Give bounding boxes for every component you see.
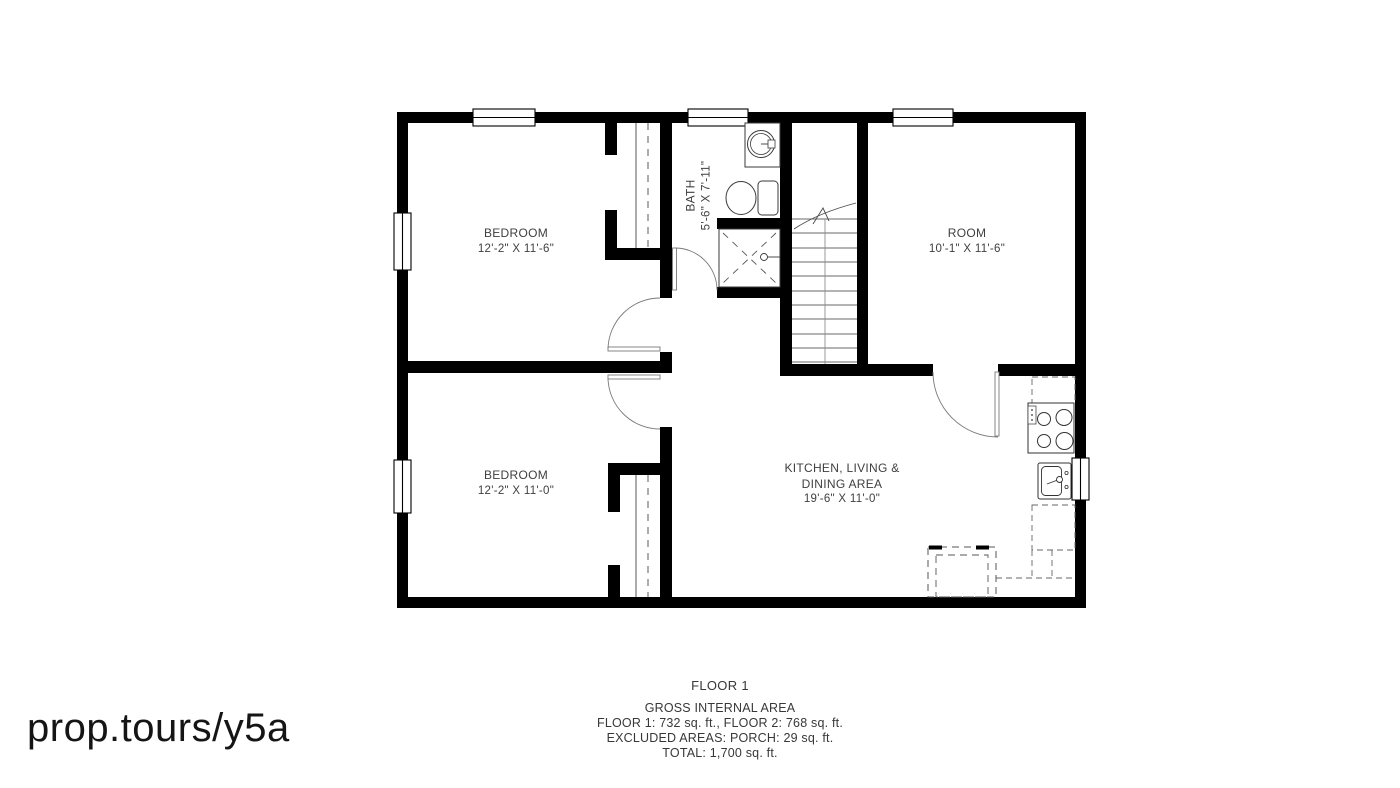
wall-bottom: [397, 597, 1086, 608]
stair-treads: [792, 219, 857, 362]
window-kitchen-right: [1072, 458, 1089, 500]
bath-sink-icon: [745, 123, 780, 167]
stairs: [792, 203, 857, 364]
island-dashed-box: [928, 547, 996, 597]
door-bedroom-bottom: [608, 375, 660, 429]
bath-name: BATH: [684, 136, 700, 256]
room-name: ROOM: [857, 226, 1077, 242]
area-summary: FLOOR 1 GROSS INTERNAL AREA FLOOR 1: 732…: [470, 678, 970, 761]
door-bedroom-top: [608, 298, 660, 351]
bath-dims: 5'-6" X 7'-11": [699, 136, 715, 256]
floorplan-drawing: [0, 0, 1400, 788]
windows: [394, 109, 1089, 513]
wall-right: [1075, 112, 1086, 608]
floor-areas-line: FLOOR 1: 732 sq. ft., FLOOR 2: 768 sq. f…: [470, 716, 970, 731]
wall-hall-left-stub: [660, 352, 672, 373]
label-room: ROOM 10'-1" X 11'-6": [857, 226, 1077, 257]
wall-bath-right: [780, 112, 792, 376]
counters-dashed-lower: [996, 505, 1075, 578]
window-bath: [688, 109, 748, 126]
stove-icon: [1028, 403, 1074, 453]
kitchen-dims: 19'-6" X 11'-0": [732, 492, 952, 508]
bedroom-bottom-name: BEDROOM: [406, 468, 626, 484]
bath-fixtures: [719, 123, 780, 287]
wall-stairs-bottom: [780, 364, 933, 376]
window-room: [893, 109, 953, 126]
wall-kitchen-left: [660, 427, 672, 608]
floorplan-page: BEDROOM 12'-2" X 11'-6" BEDROOM 12'-2" X…: [0, 0, 1400, 788]
toilet-icon: [726, 181, 778, 215]
shower-icon: [719, 229, 780, 287]
wall-bath-bottom: [717, 287, 780, 298]
counter-dashed-upper: [1032, 377, 1075, 403]
label-kitchen: KITCHEN, LIVING & DINING AREA 19'-6" X 1…: [732, 461, 952, 508]
room-dims: 10'-1" X 11'-6": [857, 242, 1077, 258]
floor-title: FLOOR 1: [470, 678, 970, 693]
kitchen-name-line1: KITCHEN, LIVING &: [732, 461, 952, 477]
excluded-areas-line: EXCLUDED AREAS: PORCH: 29 sq. ft.: [470, 731, 970, 746]
stair-arrowhead-icon: [813, 208, 829, 224]
kitchen-name-line2: DINING AREA: [732, 477, 952, 493]
label-bedroom-top: BEDROOM 12'-2" X 11'-6": [406, 226, 626, 257]
closet-fittings: [636, 123, 648, 597]
total-area-line: TOTAL: 1,700 sq. ft.: [470, 746, 970, 761]
wall-hall-left-upper: [660, 112, 672, 298]
gross-internal-area-label: GROSS INTERNAL AREA: [470, 701, 970, 716]
wall-closet1-left-a: [605, 112, 617, 155]
wall-room-bottom-right: [998, 364, 1086, 376]
wall-closet2-left-b: [608, 565, 620, 597]
kitchen-sink-icon: [1038, 463, 1071, 499]
label-bath: BATH 5'-6" X 7'-11": [684, 136, 715, 256]
wall-shower-top: [717, 218, 780, 229]
bedroom-top-dims: 12'-2" X 11'-6": [406, 242, 626, 258]
window-bedroom-top: [473, 109, 535, 126]
wall-left: [397, 112, 408, 608]
watermark-link: prop.tours/y5a: [27, 706, 290, 751]
bedroom-top-name: BEDROOM: [406, 226, 626, 242]
label-bedroom-bottom: BEDROOM 12'-2" X 11'-0": [406, 468, 626, 499]
wall-bedroom-divider: [397, 361, 672, 373]
bedroom-bottom-dims: 12'-2" X 11'-0": [406, 484, 626, 500]
door-room: [933, 372, 999, 437]
